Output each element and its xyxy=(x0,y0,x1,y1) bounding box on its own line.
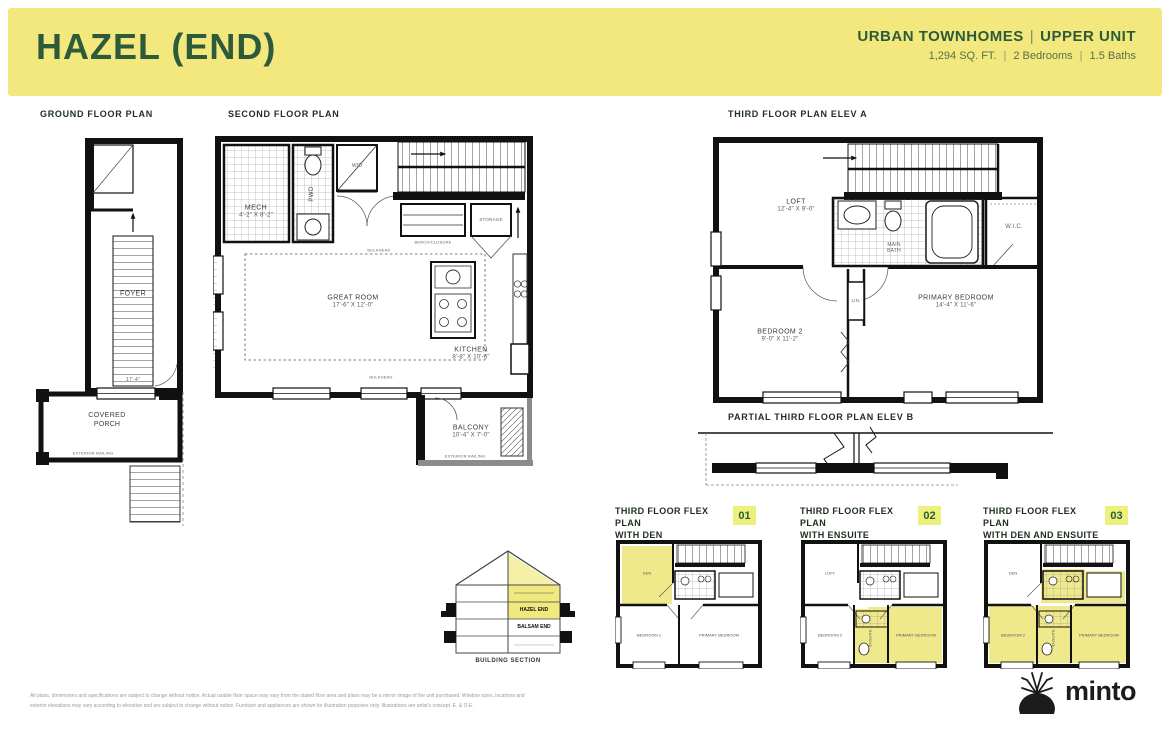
mech-room xyxy=(224,145,289,242)
header-divider: | xyxy=(1024,28,1040,45)
building-section: HAZEL END BALSAM END BUILDING SECTION xyxy=(438,545,583,670)
flex-bath-block xyxy=(1043,571,1121,599)
hazel-end-cell: HAZEL END xyxy=(520,607,549,613)
foyer-stairs xyxy=(113,214,153,386)
sink-icon xyxy=(297,214,329,240)
flex-plan-01: THIRD FLOOR FLEX PLANWITH DEN 01 xyxy=(615,505,765,670)
third-floor-a-drawing xyxy=(708,136,1048,408)
wic-label: W.I.C. xyxy=(1005,224,1023,232)
left-balcony xyxy=(441,603,456,643)
third-floor-b-label: PARTIAL THIRD FLOOR PLAN ELEV B xyxy=(728,412,914,422)
toilet-icon xyxy=(305,147,321,175)
ground-floor-plan: FOYER 17'-4" COVEREDPORCH EXTERIOR RAILI… xyxy=(35,136,187,528)
linen-label: LIN. xyxy=(851,298,860,304)
ground-floor-drawing xyxy=(35,136,187,528)
flex-03-primary-label: PRIMARY BEDROOM xyxy=(1079,634,1119,639)
stairs-up xyxy=(393,142,525,200)
flex-02-title: THIRD FLOOR FLEX PLANWITH ENSUITE xyxy=(800,505,912,541)
flex-01-den-label: DEN xyxy=(643,572,651,577)
wic-closet xyxy=(986,198,1040,266)
main-bath-label: MAINBATH xyxy=(887,242,901,254)
second-floor-plan: MECH4'-2" X 8'-2" PWD W/D STORAGE BENCH/… xyxy=(213,136,537,470)
baths-value: 1.5 Baths xyxy=(1090,50,1136,62)
storage-label: STORAGE xyxy=(479,217,502,223)
flex-03-bed2-label: BEDROOM 2 xyxy=(1001,634,1025,639)
ground-floor-label: GROUND FLOOR PLAN xyxy=(40,109,153,119)
pwd-label: PWD xyxy=(309,186,317,201)
mech-label: MECH4'-2" X 8'-2" xyxy=(239,204,273,221)
kitchen-counter xyxy=(511,254,529,374)
flex-02-badge: 02 xyxy=(918,506,941,525)
bedroom2-label: BEDROOM 29'-0" X 11'-2" xyxy=(757,328,803,345)
bench-unit xyxy=(401,204,465,236)
balcony-label: BALCONY10'-4" X 7'-0" xyxy=(452,424,489,441)
spec-divider: | xyxy=(1073,50,1090,62)
bench-label: BENCH/CLOSURE xyxy=(414,239,451,244)
flex-bath-block xyxy=(860,571,938,599)
kitchen-island xyxy=(431,262,475,338)
flex-03-drawing xyxy=(983,539,1131,669)
minto-wordmark: minto xyxy=(1065,676,1136,707)
third-floor-plan-a: LOFT12'-4" X 9'-0" MAINBATH W.I.C. LIN. … xyxy=(708,136,1048,408)
flex-02-ensuite-label: ENSUITE xyxy=(869,629,874,646)
third-floor-plan-b xyxy=(698,425,1058,495)
bath-sink-icon xyxy=(838,201,876,229)
flex-01-title: THIRD FLOOR FLEX PLANWITH DEN xyxy=(615,505,727,541)
page-title: HAZEL (END) xyxy=(36,26,276,68)
porch-label: COVEREDPORCH xyxy=(88,411,125,429)
flex-03-badge: 03 xyxy=(1105,506,1128,525)
third-floor-b-drawing xyxy=(698,425,1058,495)
building-section-drawing xyxy=(438,545,583,670)
balsam-end-cell: BALSAM END xyxy=(517,624,550,630)
sqft-value: 1,294 SQ. FT. xyxy=(929,50,997,62)
bottom-windows xyxy=(273,388,461,399)
fridge-icon xyxy=(511,344,529,374)
legal-disclaimer: All plans, dimensions and specifications… xyxy=(30,692,542,711)
flex-02-bed2-label: BEDROOM 2 xyxy=(818,634,842,639)
unit-label: UPPER UNIT xyxy=(1040,28,1136,45)
wd-label: W/D xyxy=(352,163,362,170)
bath-toilet-icon xyxy=(885,201,901,231)
loft-label: LOFT12'-4" X 9'-0" xyxy=(777,198,814,215)
product-line: URBAN TOWNHOMES|UPPER UNIT xyxy=(857,28,1136,45)
flex-03-den-label: DEN xyxy=(1009,572,1017,577)
flex-01-badge: 01 xyxy=(733,506,756,525)
floorplan-sheet: HAZEL (END) URBAN TOWNHOMES|UPPER UNIT 1… xyxy=(0,0,1170,737)
main-bath xyxy=(833,198,983,266)
flex-plan-03: THIRD FLOOR FLEX PLANWITH DEN AND ENSUIT… xyxy=(983,505,1133,670)
minto-logo: minto xyxy=(1016,668,1136,714)
primary-bedroom-label: PRIMARY BEDROOM14'-4" X 11'-6" xyxy=(918,294,994,311)
entry-closet xyxy=(93,145,133,193)
flex-bath-block xyxy=(675,571,753,599)
flex-02-drawing xyxy=(800,539,948,669)
third-floor-a-label: THIRD FLOOR PLAN ELEV A xyxy=(728,109,867,119)
storage-closet xyxy=(471,204,511,258)
stair-dim-label: 17'-4" xyxy=(126,377,140,384)
great-room-label: GREAT ROOM17'-6" X 12'-0" xyxy=(327,294,378,311)
bedrooms-value: 2 Bedrooms xyxy=(1013,50,1072,62)
spec-line: 1,294 SQ. FT.|2 Bedrooms|1.5 Baths xyxy=(857,50,1136,62)
kitchen-label: KITCHEN8'-8" X 10'-6" xyxy=(452,346,489,363)
foyer-label: FOYER xyxy=(120,289,146,298)
category-label: URBAN TOWNHOMES xyxy=(857,28,1023,45)
flex-02-loft-label: LOFT xyxy=(825,572,835,577)
flex-01-drawing xyxy=(615,539,763,669)
flex-plan-02: THIRD FLOOR FLEX PLANWITH ENSUITE 02 xyxy=(800,505,950,670)
linen-closet xyxy=(841,269,864,400)
minto-tree-icon xyxy=(1016,668,1058,714)
flex-01-primary-label: PRIMARY BEDROOM xyxy=(699,634,739,639)
flex-03-title: THIRD FLOOR FLEX PLANWITH DEN AND ENSUIT… xyxy=(983,505,1103,541)
second-floor-label: SECOND FLOOR PLAN xyxy=(228,109,339,119)
spec-divider: | xyxy=(996,50,1013,62)
flex-02-primary-label: PRIMARY BEDROOM xyxy=(896,634,936,639)
right-balcony xyxy=(560,603,575,643)
flex-01-bed2-label: BEDROOM 2 xyxy=(637,634,661,639)
balcony-railing-label: EXTERIOR RAILING xyxy=(445,453,486,458)
header-right: URBAN TOWNHOMES|UPPER UNIT 1,294 SQ. FT.… xyxy=(857,28,1136,62)
flex-03-ensuite-label: ENSUITE xyxy=(1052,629,1057,646)
porch-railing-label: EXTERIOR RAILING xyxy=(73,450,114,455)
bulkhead-top-label: BULKHEAD xyxy=(367,247,390,252)
roof-highlight xyxy=(508,553,559,586)
bulkhead-bottom-label: BULKHEAD xyxy=(369,374,392,379)
tub-icon xyxy=(926,201,978,263)
stairs-dn xyxy=(823,144,1002,200)
building-section-label: BUILDING SECTION xyxy=(475,658,540,664)
